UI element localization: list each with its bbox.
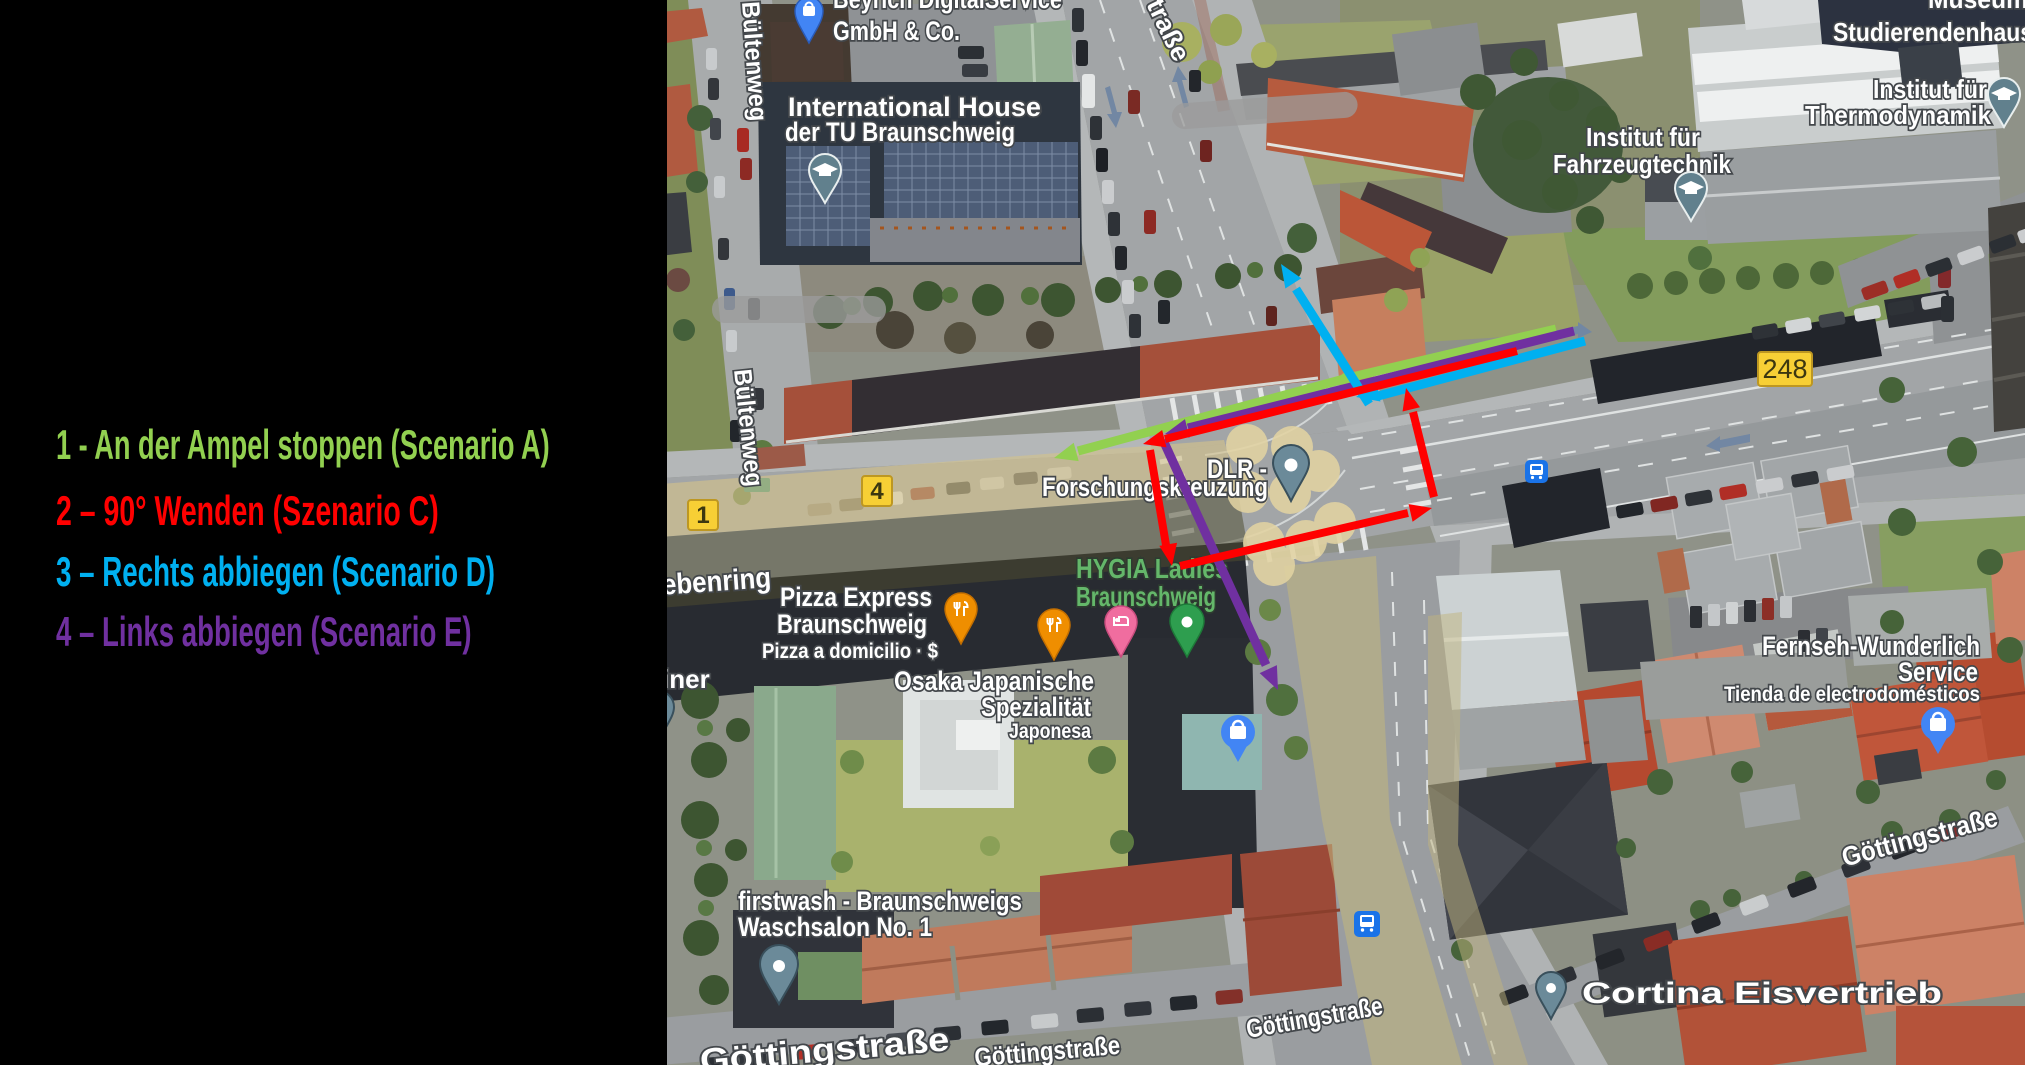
svg-text:1: 1 [696,502,709,529]
svg-text:Spezialität: Spezialität [981,692,1091,722]
svg-text:Tienda de electrodomésticos: Tienda de electrodomésticos [1724,683,1980,706]
svg-text:der TU Braunschweig: der TU Braunschweig [785,117,1015,147]
svg-text:4: 4 [870,478,884,505]
svg-text:Thermodynamik: Thermodynamik [1805,100,1991,130]
svg-text:Beyrich DigitalService: Beyrich DigitalService [833,0,1062,14]
svg-text:Braunschweig: Braunschweig [777,609,927,639]
svg-text:Cortina Eisvertrieb: Cortina Eisvertrieb [1582,977,1942,1010]
svg-text:Fahrzeugtechnik: Fahrzeugtechnik [1553,149,1731,179]
svg-text:248: 248 [1762,354,1807,384]
svg-text:Japonesa: Japonesa [1009,720,1091,743]
svg-text:Museum: Museum [1928,0,2025,14]
svg-text:Waschsalon No. 1: Waschsalon No. 1 [738,912,932,942]
svg-text:Studierendenhaus: Studierendenhaus [1833,17,2025,47]
svg-text:Pizza Express: Pizza Express [780,582,932,612]
svg-text:Institut für: Institut für [1586,122,1700,152]
svg-text:GmbH & Co.: GmbH & Co. [833,16,960,46]
svg-text:iner: iner [662,664,710,694]
svg-text:Pizza a domicilio · $: Pizza a domicilio · $ [762,640,938,663]
